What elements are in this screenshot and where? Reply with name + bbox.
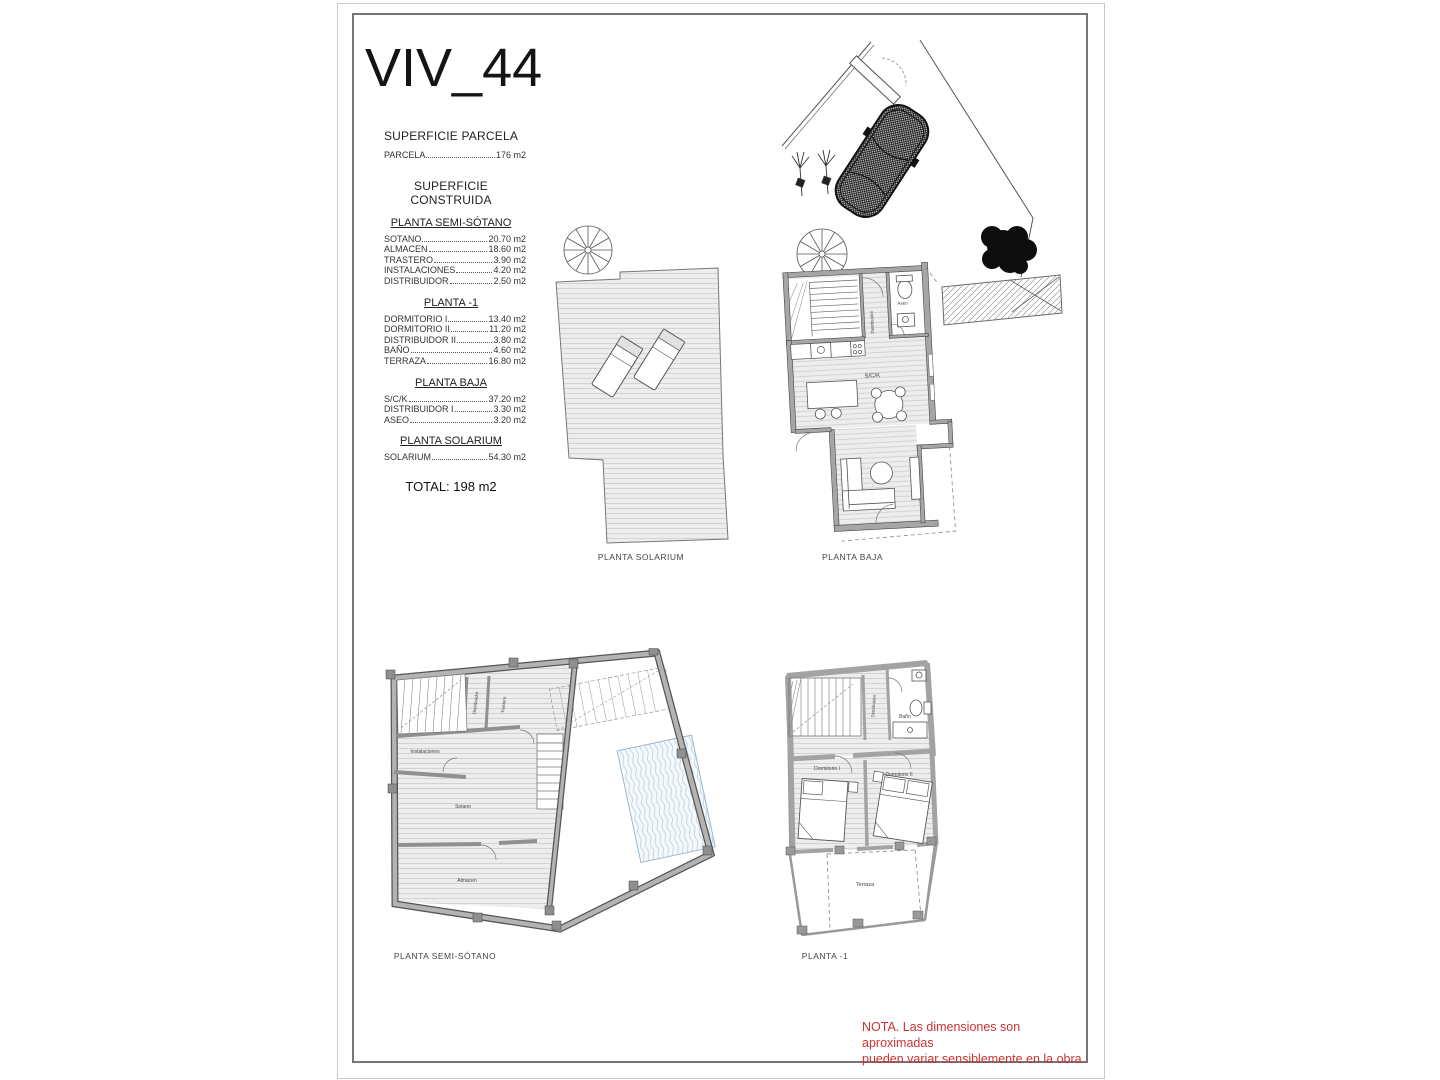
total-area: TOTAL: 198 m2 bbox=[374, 479, 528, 494]
dotted-leader bbox=[434, 262, 492, 263]
table-row: S/C/K37.20 m2 bbox=[374, 394, 528, 405]
room-label-aseo: Aseo bbox=[897, 300, 908, 306]
room-label-almacen: Almacen bbox=[457, 878, 477, 884]
parcela-heading: SUPERFICIE PARCELA bbox=[374, 129, 528, 143]
dotted-leader bbox=[422, 241, 487, 242]
dotted-leader bbox=[427, 363, 487, 364]
room-label-instalaciones: Instalaciones bbox=[410, 749, 440, 755]
table-row: DISTRIBUIDOR2.50 m2 bbox=[374, 276, 528, 287]
dotted-leader bbox=[457, 342, 492, 343]
tree-icon bbox=[981, 226, 1037, 274]
toilet-icon bbox=[910, 700, 931, 716]
surface-tables: SUPERFICIE PARCELA PARCELA176 m2 SUPERFI… bbox=[374, 129, 528, 494]
dotted-leader bbox=[456, 272, 492, 273]
sideboard-icon bbox=[910, 457, 921, 499]
dotted-leader bbox=[432, 459, 487, 460]
table-row: DISTRIBUIDOR I3.30 m2 bbox=[374, 404, 528, 415]
dotted-leader bbox=[455, 411, 493, 412]
planta-baja-floorplan: S/C/K Distribuidor Aseo bbox=[770, 28, 1070, 548]
dotted-leader bbox=[448, 321, 487, 322]
sink-icon bbox=[912, 670, 926, 681]
dotted-leader bbox=[450, 283, 493, 284]
table-row: SOLARIUM54.30 m2 bbox=[374, 452, 528, 463]
section-heading: PLANTA SOLARIUM bbox=[374, 435, 528, 447]
note-text: NOTA. Las dimensiones son aproximadas pu… bbox=[862, 1019, 1086, 1067]
dotted-leader bbox=[451, 331, 488, 332]
table-row: DORMITORIO II11.20 m2 bbox=[374, 324, 528, 335]
plan-caption-baja: PLANTA BAJA bbox=[770, 552, 935, 562]
room-label-dormitorio1: Dormitorio I bbox=[814, 766, 840, 772]
table-row: ASEO3.20 m2 bbox=[374, 415, 528, 426]
room-label-banio: Baño bbox=[899, 714, 911, 720]
dotted-leader bbox=[409, 401, 488, 402]
planta-1-plan: Distribuidor Baño Dormitorio I Dormitori… bbox=[786, 662, 937, 935]
plan-caption-solarium: PLANTA SOLARIUM bbox=[541, 552, 741, 562]
shower-icon bbox=[893, 722, 927, 738]
planta1-floorplan: Distribuidor Baño Dormitorio I Dormitori… bbox=[775, 648, 965, 948]
table-row: INSTALACIONES4.20 m2 bbox=[374, 265, 528, 276]
plant-icon bbox=[818, 150, 835, 194]
pool-icon bbox=[617, 735, 715, 862]
semisotano-floorplan: Distribuidor Trastero Instalaciones Sota… bbox=[385, 648, 730, 948]
plan-caption-planta1: PLANTA -1 bbox=[765, 951, 885, 961]
room-label-dormitorio2: Dormitorio II bbox=[885, 772, 912, 778]
dotted-leader bbox=[411, 352, 493, 353]
plant-icon bbox=[792, 152, 809, 196]
table-row: SOTANO20.70 m2 bbox=[374, 234, 528, 245]
table-row: BAÑO4.60 m2 bbox=[374, 345, 528, 356]
section-heading: PLANTA SEMI-SÓTANO bbox=[374, 217, 528, 229]
dotted-leader bbox=[429, 251, 488, 252]
terraza-dashed bbox=[827, 850, 921, 928]
room-label-sck: S/C/K bbox=[864, 373, 880, 380]
planta-baja-plan: S/C/K Distribuidor Aseo bbox=[783, 261, 958, 543]
table-row: TERRAZA16.80 m2 bbox=[374, 356, 528, 367]
car-icon bbox=[824, 95, 940, 228]
dotted-leader bbox=[410, 422, 492, 423]
sheet-title: VIV_44 bbox=[365, 37, 542, 99]
room-label-sotano: Sotano bbox=[455, 804, 471, 810]
solarium-terrace bbox=[556, 268, 728, 543]
table-row: ALMACEN18.60 m2 bbox=[374, 244, 528, 255]
neighbor-stairs bbox=[942, 275, 1062, 325]
table-row: DORMITORIO I13.40 m2 bbox=[374, 314, 528, 325]
spiral-staircase-icon bbox=[564, 226, 612, 274]
table-row: PARCELA176 m2 bbox=[374, 150, 528, 161]
table-row: TRASTERO3.90 m2 bbox=[374, 255, 528, 266]
section-heading: PLANTA BAJA bbox=[374, 377, 528, 389]
dotted-leader bbox=[426, 157, 495, 158]
solarium-floorplan bbox=[540, 213, 755, 548]
sink-icon bbox=[897, 313, 915, 327]
section-heading: PLANTA -1 bbox=[374, 297, 528, 309]
planta-semisotano-plan: Distribuidor Trastero Instalaciones Sota… bbox=[386, 648, 715, 930]
drawing-sheet: { "document": { "title": "VIV_44" }, "su… bbox=[0, 0, 1440, 1080]
plan-caption-semisotano: PLANTA SEMI-SÓTANO bbox=[385, 951, 505, 961]
construida-heading: SUPERFICIE CONSTRUIDA bbox=[374, 179, 528, 207]
room-label-terraza: Terraza bbox=[856, 882, 875, 888]
dining-table-icon bbox=[871, 387, 907, 423]
table-row: DISTRIBUIDOR II3.80 m2 bbox=[374, 335, 528, 346]
stairs bbox=[397, 674, 467, 734]
